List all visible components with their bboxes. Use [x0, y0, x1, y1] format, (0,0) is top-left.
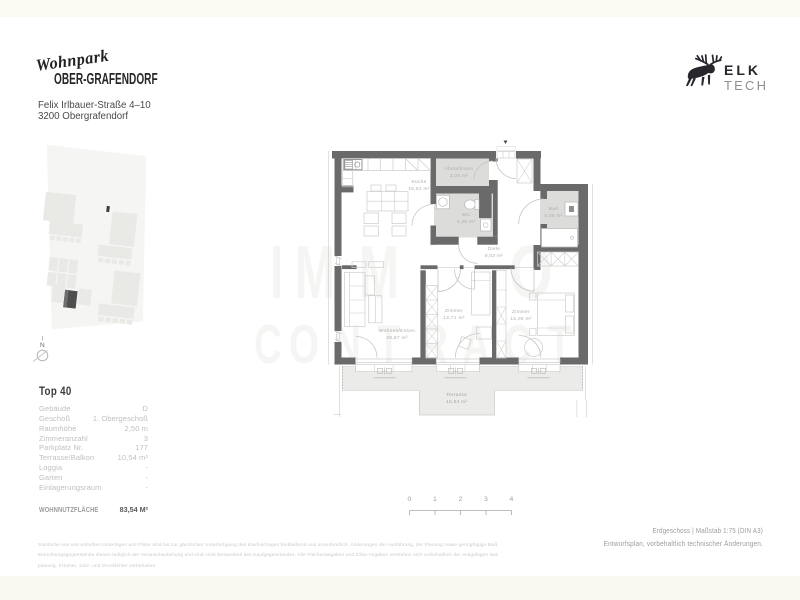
svg-text:10,54 m²: 10,54 m² [446, 399, 467, 405]
svg-text:Küche: Küche [411, 179, 426, 185]
svg-text:4,28 m²: 4,28 m² [457, 219, 475, 225]
svg-text:Zimmer: Zimmer [512, 309, 530, 315]
svg-text:Abstellraum: Abstellraum [445, 166, 474, 172]
svg-text:15,06 m²: 15,06 m² [510, 316, 531, 322]
svg-text:12,71 m²: 12,71 m² [443, 315, 464, 321]
svg-text:N: N [40, 342, 45, 349]
svg-text:5,05 m²: 5,05 m² [544, 213, 562, 219]
svg-text:WC: WC [462, 212, 471, 218]
svg-text:Wohnen/Essen: Wohnen/Essen [379, 328, 415, 334]
svg-text:29,87 m²: 29,87 m² [386, 335, 407, 341]
svg-text:8,02 m²: 8,02 m² [485, 253, 503, 259]
svg-text:Terrasse: Terrasse [446, 392, 467, 398]
svg-text:Diele: Diele [488, 246, 500, 252]
svg-text:16,51 m²: 16,51 m² [408, 186, 429, 192]
svg-text:3,06 m²: 3,06 m² [450, 173, 468, 179]
svg-text:Bad: Bad [549, 206, 558, 212]
svg-text:Zimmer: Zimmer [445, 308, 463, 314]
